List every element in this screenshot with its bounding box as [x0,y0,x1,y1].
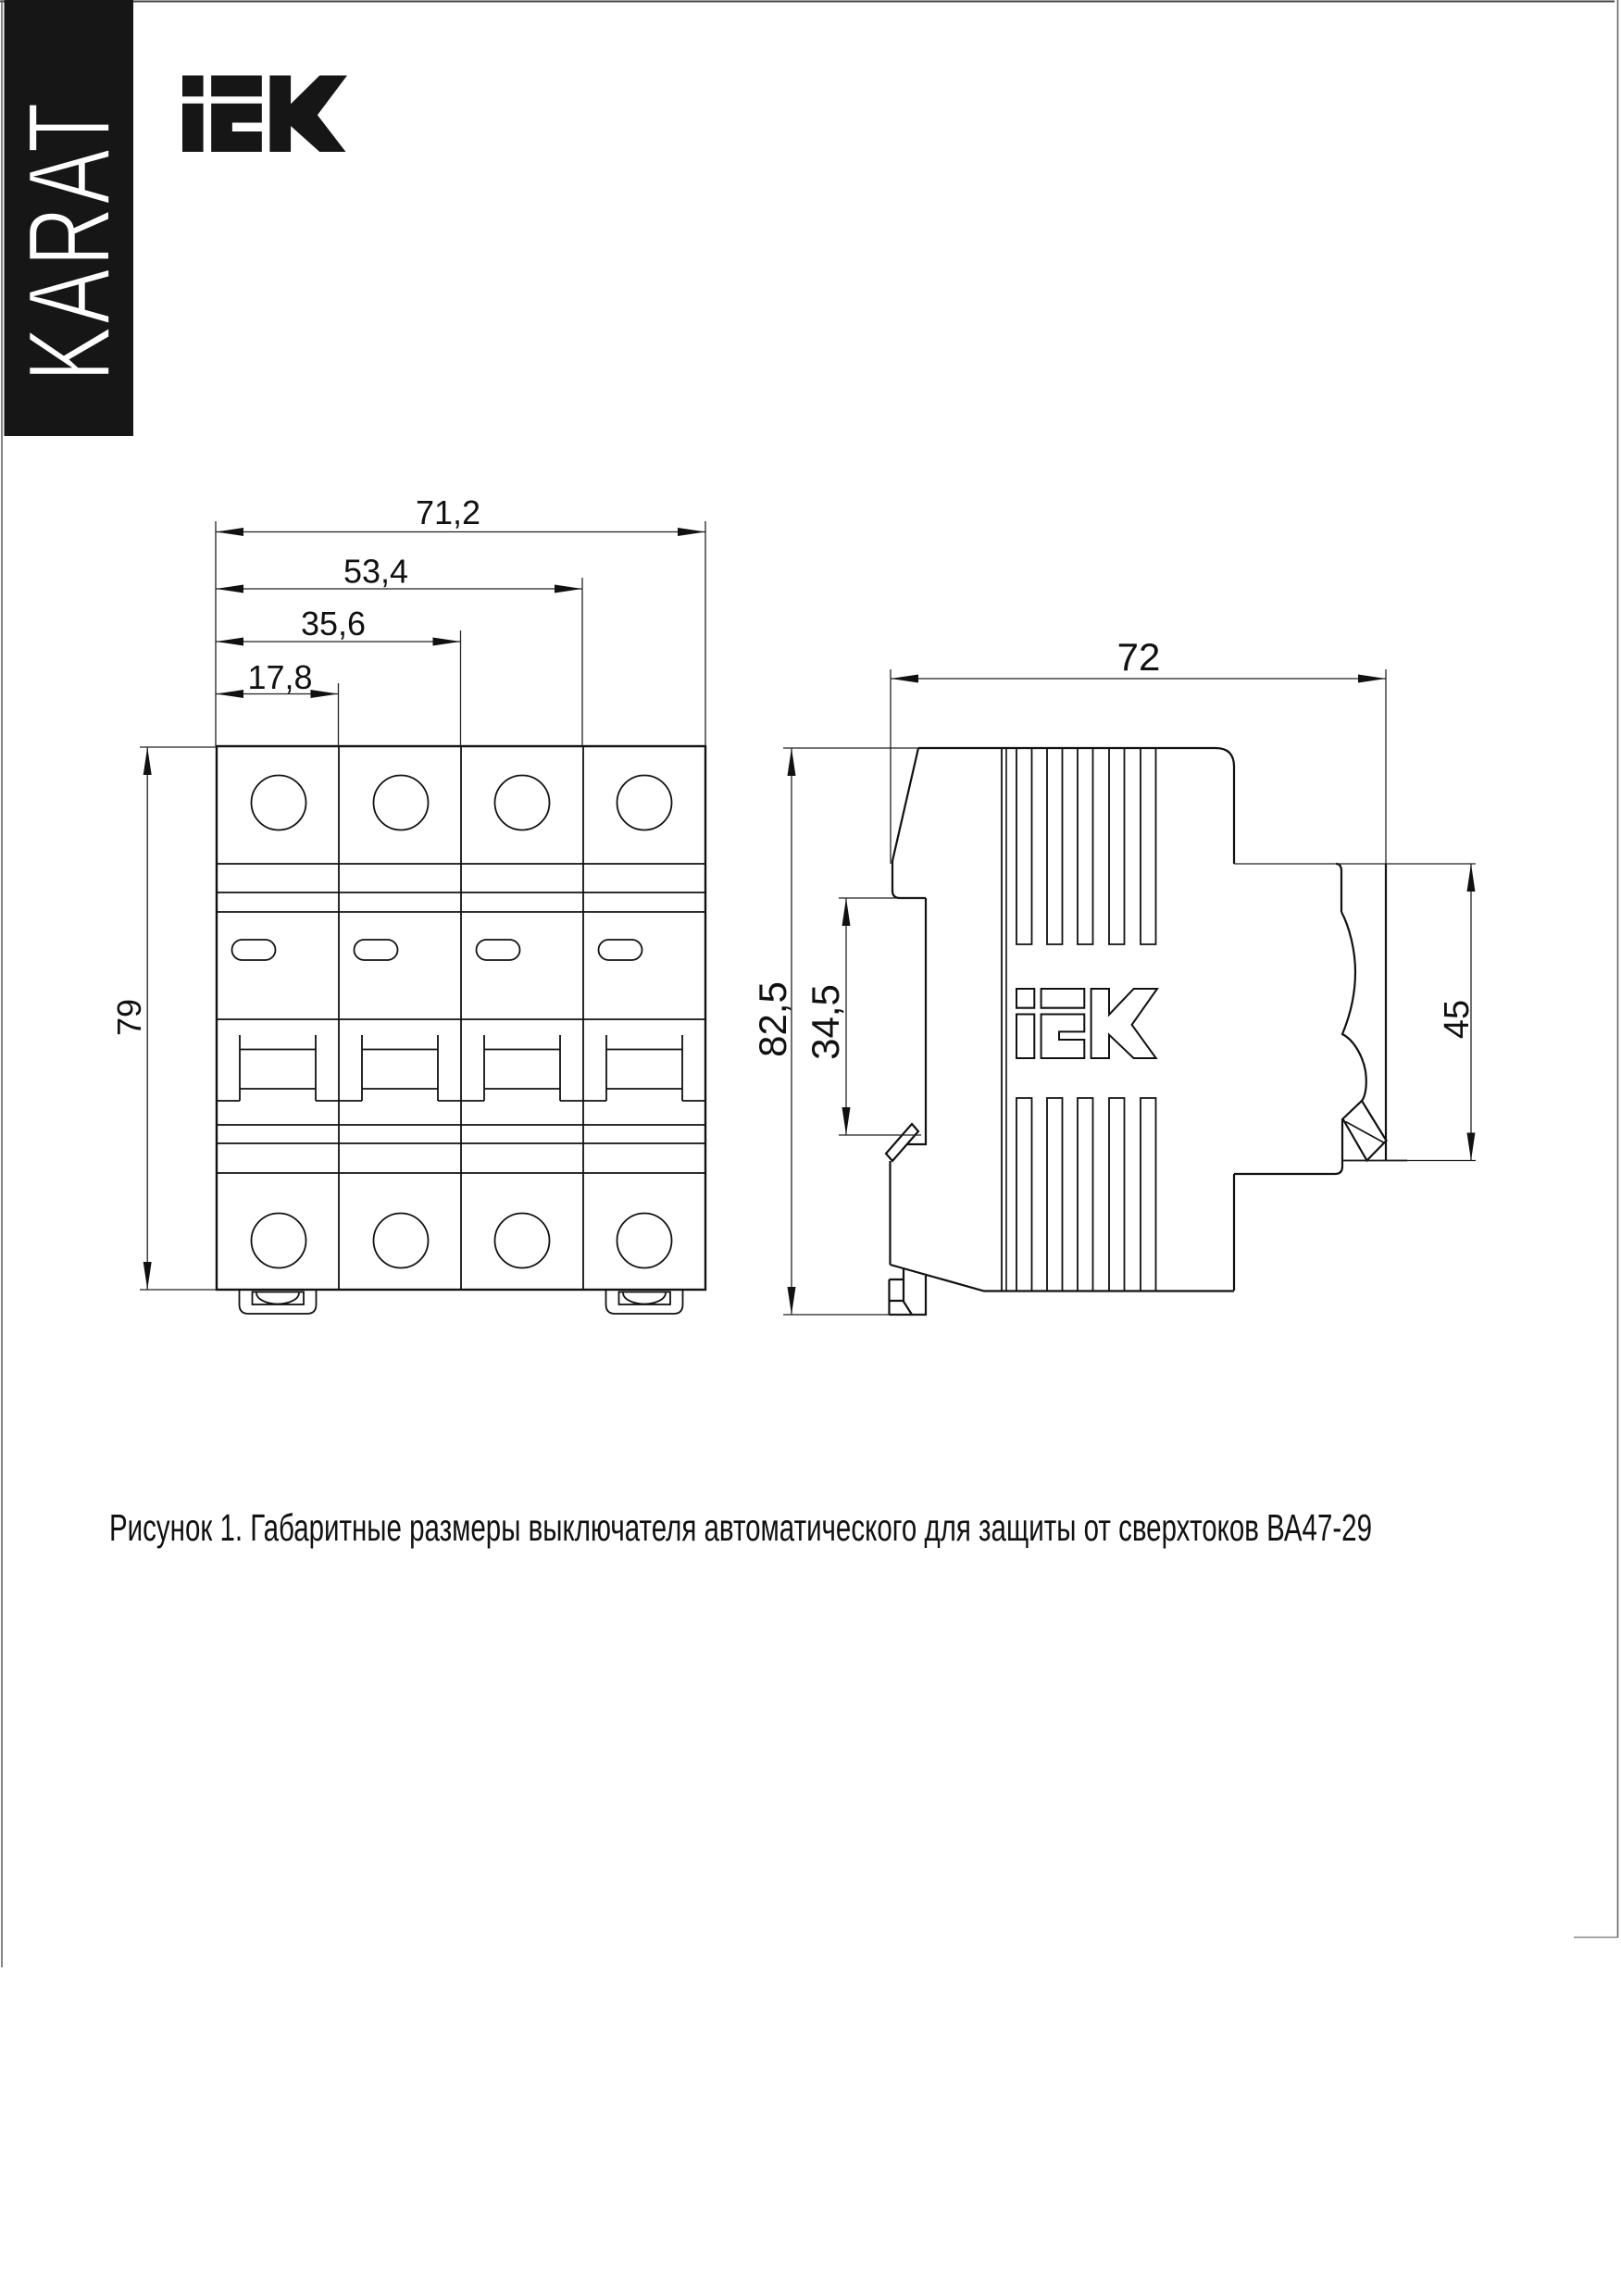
svg-text:35,6: 35,6 [301,605,366,643]
svg-text:53,4: 53,4 [343,553,408,591]
svg-text:79: 79 [110,999,148,1036]
svg-text:17,8: 17,8 [247,658,312,696]
svg-text:KARAT: KARAT [5,100,135,381]
svg-text:45: 45 [1438,1000,1477,1039]
svg-text:71,2: 71,2 [416,493,480,531]
svg-text:Рисунок 1. Габаритные размеры: Рисунок 1. Габаритные размеры выключател… [109,1506,1372,1549]
svg-text:34,5: 34,5 [804,984,847,1060]
svg-text:82,5: 82,5 [751,981,794,1057]
svg-text:72: 72 [1117,635,1161,679]
